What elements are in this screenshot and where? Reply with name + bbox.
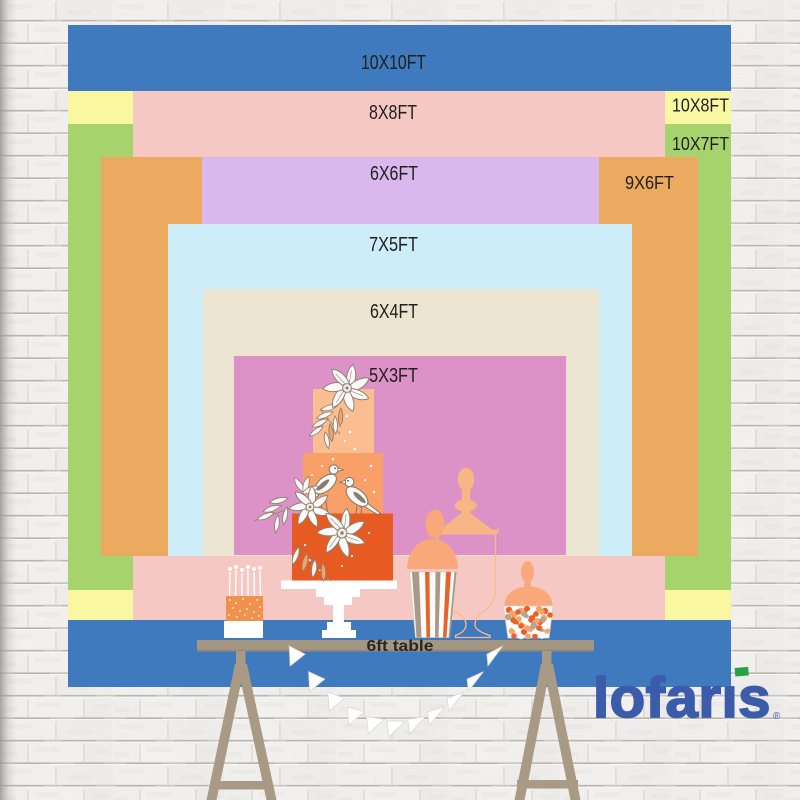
svg-text:6ft table: 6ft table xyxy=(367,638,434,655)
svg-text:10X8FT: 10X8FT xyxy=(672,96,729,116)
svg-text:®: ® xyxy=(773,711,781,722)
svg-text:10X10FT: 10X10FT xyxy=(361,51,426,74)
svg-text:6X4FT: 6X4FT xyxy=(370,300,418,323)
svg-text:6X6FT: 6X6FT xyxy=(370,162,418,185)
svg-text:5X3FT: 5X3FT xyxy=(369,364,418,387)
svg-text:9X6FT: 9X6FT xyxy=(625,173,674,193)
svg-text:8X8FT: 8X8FT xyxy=(369,101,417,124)
svg-text:10X7FT: 10X7FT xyxy=(672,134,729,154)
svg-text:7X5FT: 7X5FT xyxy=(369,233,418,256)
